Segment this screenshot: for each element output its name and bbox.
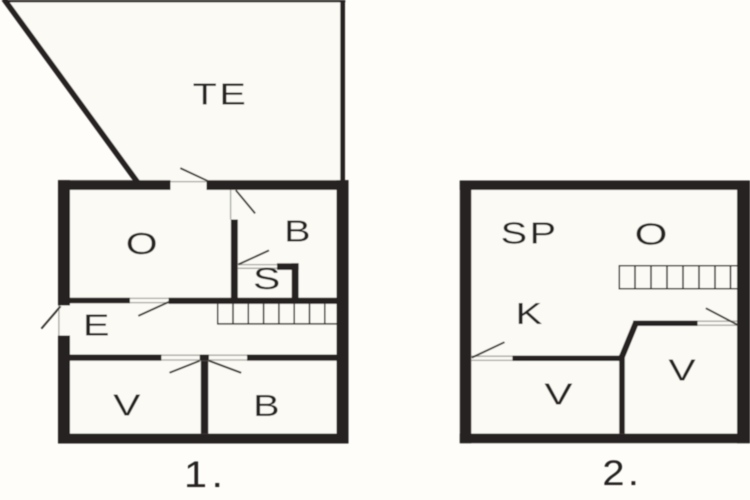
- svg-text:2.: 2.: [602, 453, 642, 493]
- svg-text:E: E: [83, 307, 109, 342]
- svg-text:TE: TE: [193, 77, 249, 112]
- svg-text:O: O: [126, 226, 158, 261]
- svg-text:S: S: [253, 261, 280, 296]
- svg-text:1.: 1.: [184, 454, 228, 495]
- svg-text:K: K: [515, 295, 542, 330]
- svg-text:B: B: [284, 214, 310, 249]
- svg-text:V: V: [668, 352, 696, 387]
- svg-text:O: O: [635, 217, 668, 251]
- svg-text:SP: SP: [501, 216, 559, 251]
- svg-text:V: V: [113, 387, 141, 422]
- svg-text:B: B: [253, 388, 279, 423]
- svg-text:V: V: [544, 377, 572, 411]
